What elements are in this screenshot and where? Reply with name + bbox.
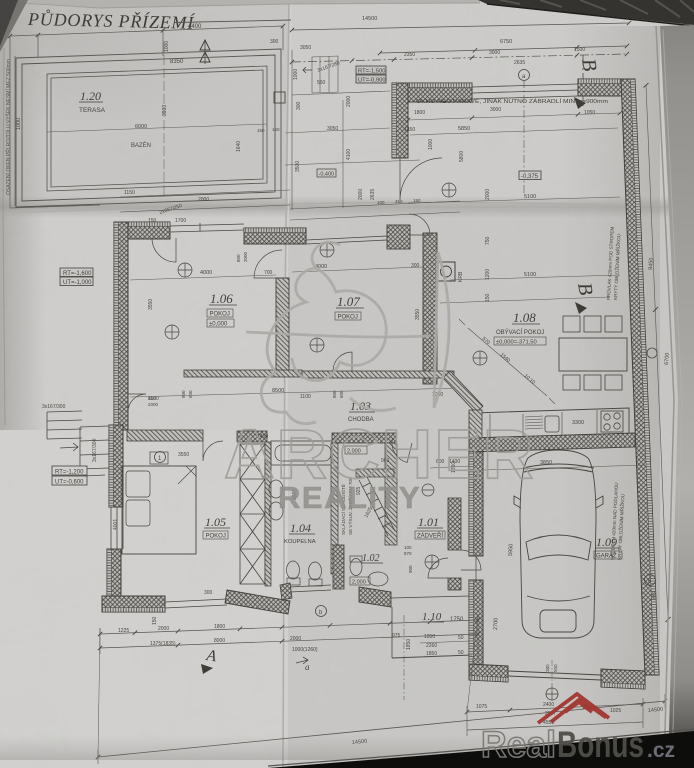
svg-text:.cz: .cz xyxy=(647,739,675,762)
svg-text:Bonus: Bonus xyxy=(557,724,644,765)
svg-text:Real: Real xyxy=(481,724,556,765)
